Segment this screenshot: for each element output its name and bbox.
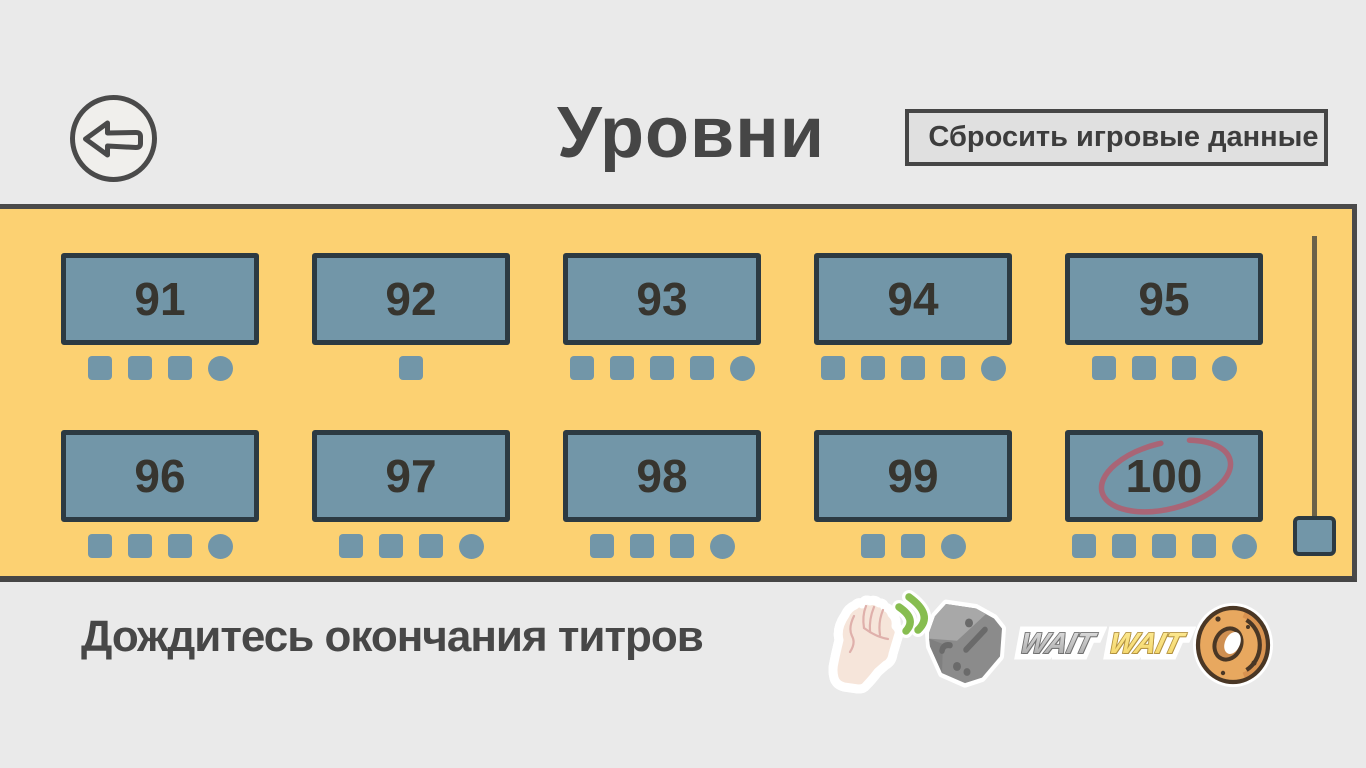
svg-text:WAIT: WAIT (1017, 627, 1101, 659)
svg-text:WAIT: WAIT (1106, 627, 1190, 659)
